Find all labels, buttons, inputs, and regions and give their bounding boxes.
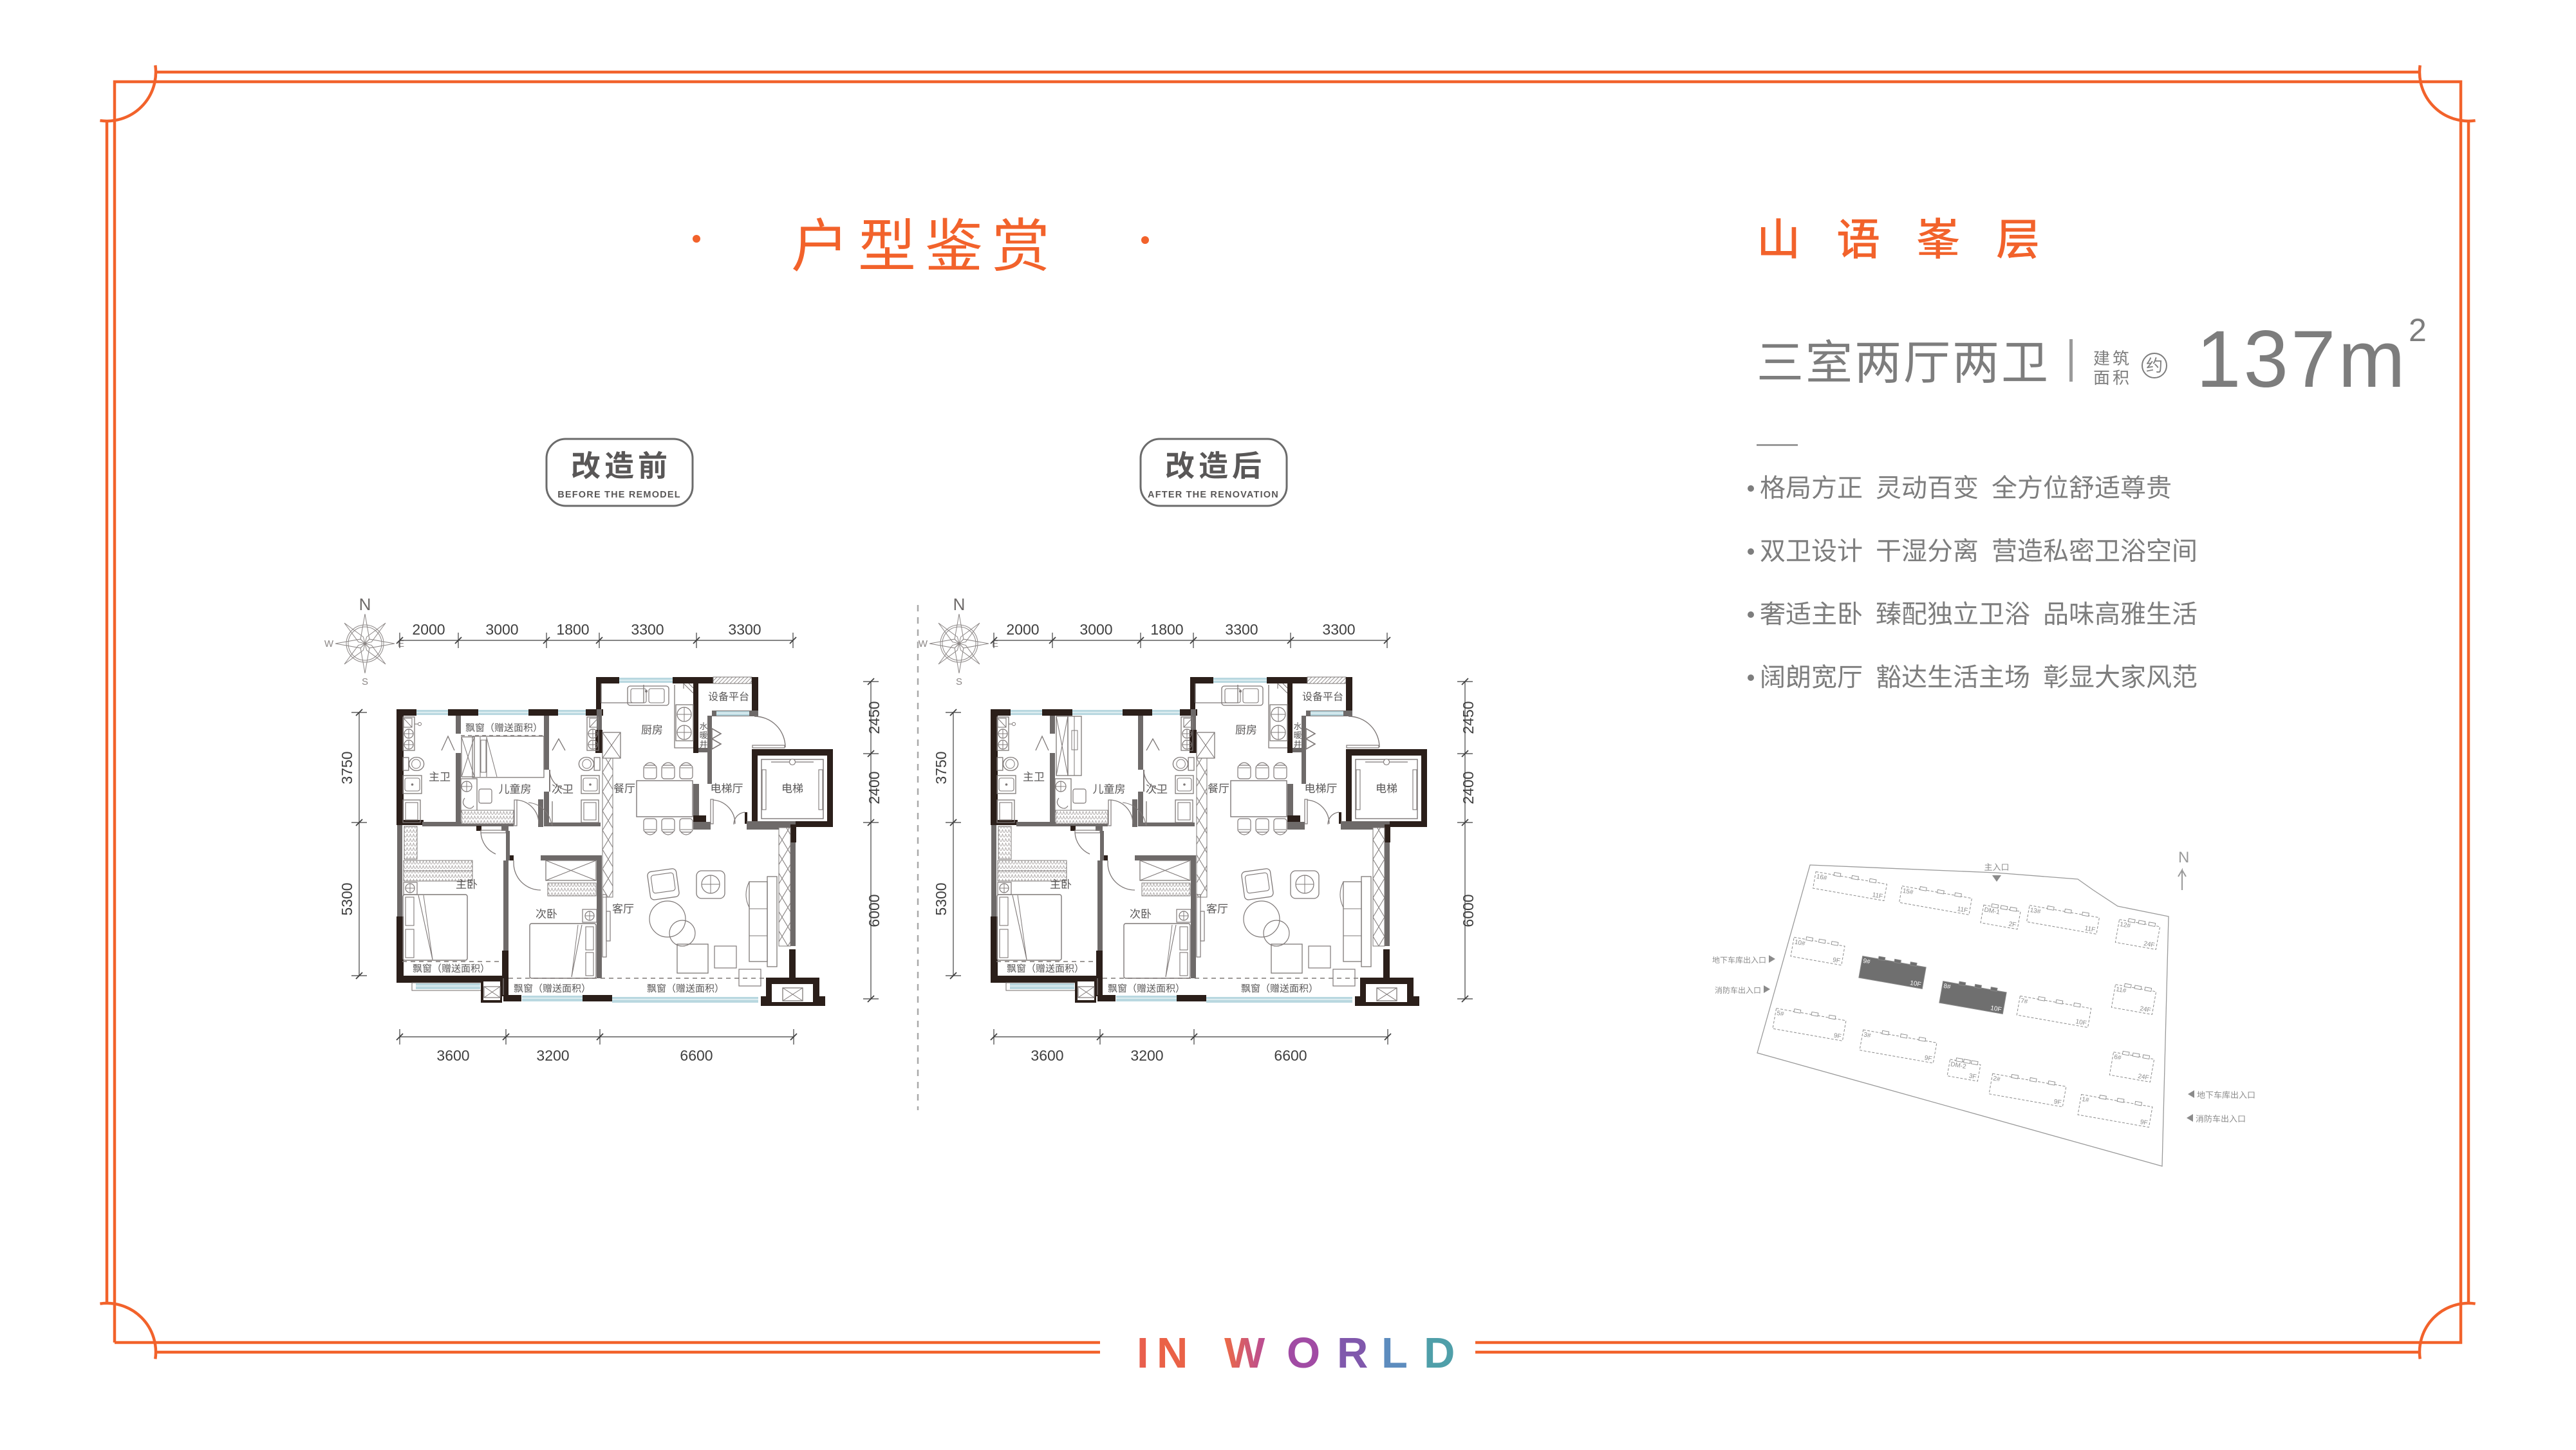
svg-text:6000: 6000 <box>866 894 882 927</box>
svg-text:3750: 3750 <box>933 751 949 784</box>
svg-text:N: N <box>2178 849 2189 866</box>
svg-text:2000: 2000 <box>1006 621 1039 638</box>
svg-text:3600: 3600 <box>436 1047 469 1064</box>
svg-text:6600: 6600 <box>1274 1047 1307 1064</box>
svg-text:AFTER THE RENOVATION: AFTER THE RENOVATION <box>1148 490 1279 500</box>
svg-text:2: 2 <box>2409 312 2427 348</box>
svg-text:5300: 5300 <box>933 882 949 915</box>
svg-text:2450: 2450 <box>866 701 882 734</box>
svg-text:3300: 3300 <box>728 621 761 638</box>
svg-text:R: R <box>1337 1329 1368 1377</box>
svg-text:3F: 3F <box>1968 1073 1977 1081</box>
svg-text:2400: 2400 <box>866 771 882 804</box>
svg-text:N: N <box>1157 1329 1188 1377</box>
svg-text:6000: 6000 <box>1460 894 1477 927</box>
svg-text:W: W <box>919 638 928 649</box>
svg-text:1800: 1800 <box>1150 621 1183 638</box>
svg-text:9F: 9F <box>1924 1054 1932 1063</box>
svg-text:9F: 9F <box>1832 956 1840 965</box>
svg-text:1800: 1800 <box>556 621 589 638</box>
svg-text:2450: 2450 <box>1460 701 1477 734</box>
svg-text:3200: 3200 <box>536 1047 569 1064</box>
svg-text:3000: 3000 <box>1079 621 1112 638</box>
svg-text:W: W <box>1224 1329 1265 1377</box>
svg-text:3600: 3600 <box>1031 1047 1063 1064</box>
svg-text:W: W <box>324 638 334 649</box>
svg-text:I: I <box>1137 1329 1149 1377</box>
svg-text:3300: 3300 <box>631 621 664 638</box>
svg-text:3000: 3000 <box>485 621 518 638</box>
svg-text:3750: 3750 <box>339 751 355 784</box>
svg-text:N: N <box>953 595 966 614</box>
svg-text:S: S <box>362 676 368 687</box>
svg-text:3200: 3200 <box>1130 1047 1163 1064</box>
svg-text:N: N <box>359 595 371 614</box>
svg-text:2400: 2400 <box>1460 771 1477 804</box>
svg-text:S: S <box>956 676 962 687</box>
svg-text:BEFORE THE REMODEL: BEFORE THE REMODEL <box>557 490 681 500</box>
svg-text:D: D <box>1424 1329 1455 1377</box>
svg-text:137m: 137m <box>2196 315 2408 404</box>
svg-text:O: O <box>1287 1329 1320 1377</box>
svg-text:3300: 3300 <box>1322 621 1355 638</box>
svg-text:9F: 9F <box>2140 1119 2148 1127</box>
svg-text:3300: 3300 <box>1225 621 1258 638</box>
svg-text:9F: 9F <box>1833 1032 1842 1041</box>
svg-text:L: L <box>1381 1329 1408 1377</box>
svg-text:6600: 6600 <box>680 1047 713 1064</box>
svg-text:9F: 9F <box>2053 1098 2062 1106</box>
svg-text:5300: 5300 <box>339 882 355 915</box>
svg-text:2F: 2F <box>2008 920 2017 929</box>
svg-text:2000: 2000 <box>412 621 445 638</box>
